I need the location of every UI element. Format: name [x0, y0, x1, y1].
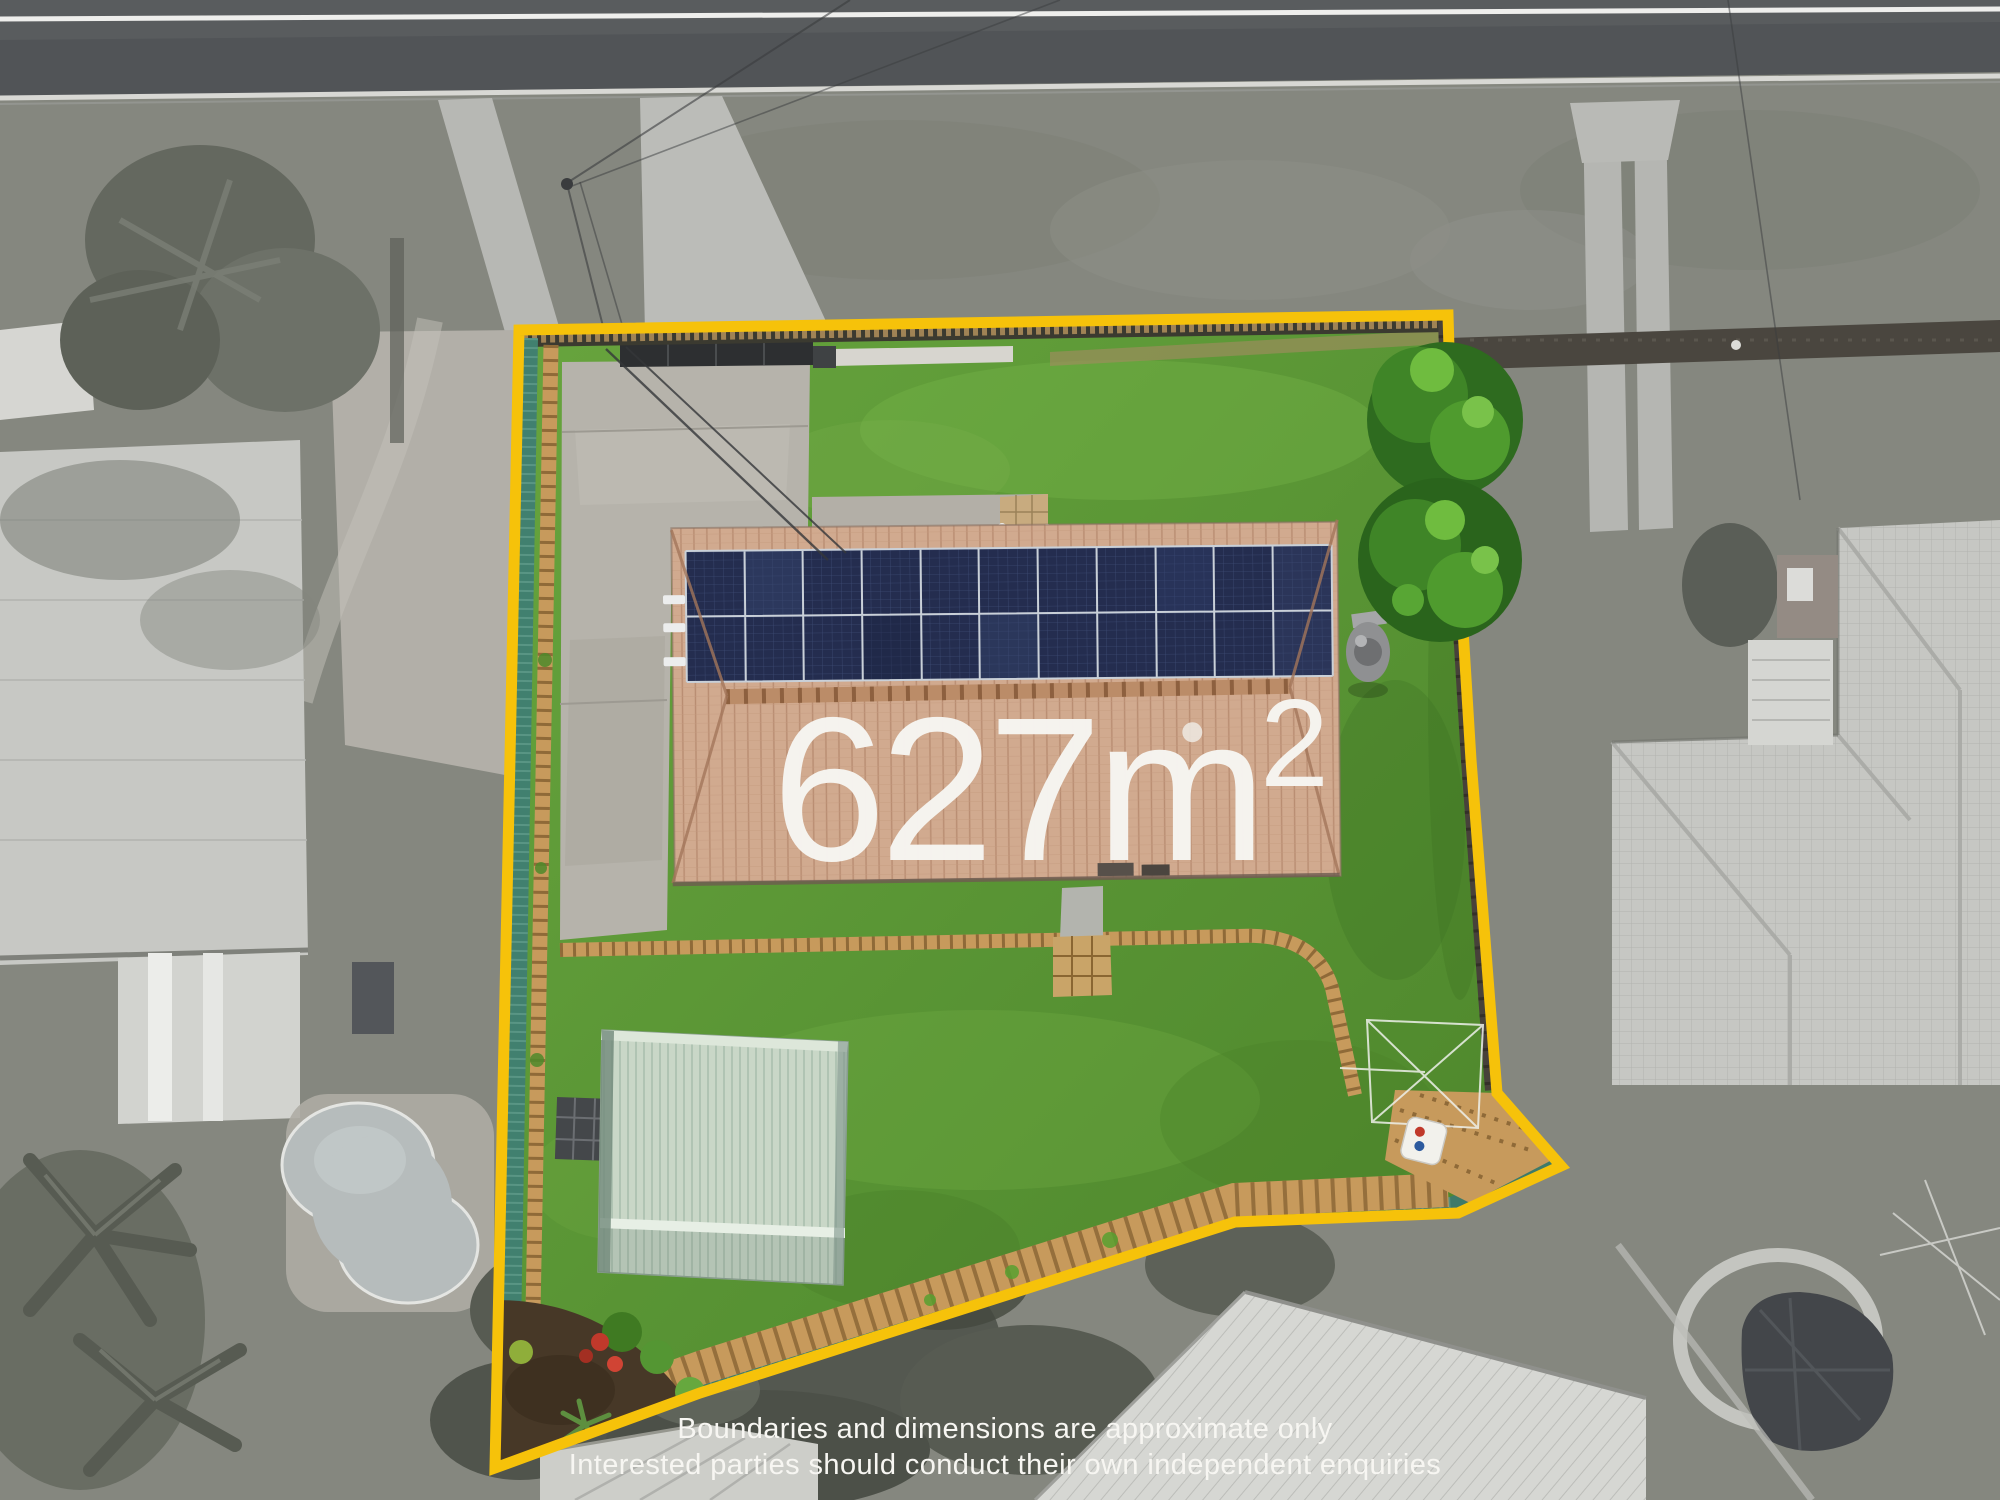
neighbour-pool — [282, 1094, 494, 1312]
garden-shed — [598, 1030, 848, 1285]
disclaimer-line-2: Interested parties should conduct their … — [569, 1449, 1441, 1481]
solar-panel-array — [686, 545, 1333, 682]
area-label: 627m — [772, 675, 1261, 904]
disclaimer-line-1: Boundaries and dimensions are approximat… — [677, 1413, 1332, 1445]
aerial-photo: 627m 2 Boundaries and dimensions are app… — [0, 0, 2000, 1500]
gate — [813, 346, 836, 368]
area-label-superscript: 2 — [1260, 675, 1329, 813]
aerial-photo-canvas: 627m 2 Boundaries and dimensions are app… — [0, 0, 2000, 1500]
neighbour-hedge — [390, 238, 404, 443]
neighbour-dark-object — [352, 962, 394, 1034]
neighbour-shrub — [1682, 523, 1778, 647]
neighbour-caravan — [1748, 640, 1833, 745]
